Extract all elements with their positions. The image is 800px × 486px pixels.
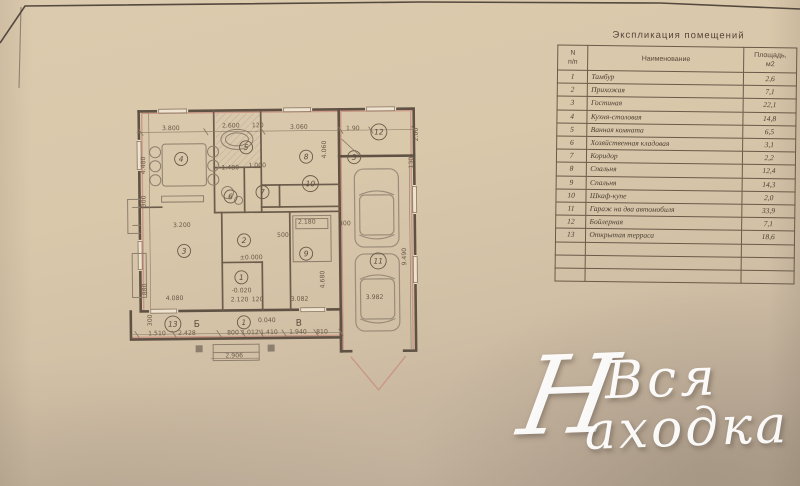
cell-area: 7,1 (742, 218, 795, 232)
dimension-label: 4.060 (321, 141, 328, 159)
dimension-label: 2.600 (222, 122, 240, 129)
bathroom-hatch (216, 113, 261, 166)
axis-label: Б (194, 320, 200, 330)
room-number: 9 (300, 247, 313, 260)
cell-area: 22,1 (743, 99, 796, 113)
room-number: 3 (178, 244, 191, 257)
cell-name: Коридор (587, 150, 743, 165)
cell-area: 33,9 (742, 204, 795, 218)
room-number: 11 (370, 253, 386, 269)
cell-num: 7 (556, 149, 587, 163)
svg-text:13: 13 (168, 320, 178, 329)
dimension-label: 1.510 (148, 330, 166, 337)
dimension-label: 120 (252, 122, 264, 129)
empty-row (555, 268, 794, 284)
svg-text:6: 6 (228, 192, 233, 201)
cell-area: 18,6 (742, 231, 795, 245)
svg-text:1: 1 (239, 273, 244, 282)
cell-area: 2,2 (743, 152, 796, 166)
cell-name: Спальня (587, 163, 743, 178)
col-header-num: N п/п (558, 45, 589, 70)
dimension-label: 9.490 (401, 248, 408, 266)
windows (137, 107, 418, 314)
cell-num: 9 (556, 176, 587, 190)
svg-text:11: 11 (373, 256, 383, 265)
dimension-label: 300 (147, 314, 154, 326)
cell-num: 11 (556, 202, 587, 216)
cell-area: 7,1 (744, 86, 797, 100)
svg-text:12: 12 (374, 127, 384, 136)
col-header-name: Наименование (588, 45, 744, 72)
dimension-label: 1.940 (289, 329, 307, 336)
svg-text:5: 5 (244, 143, 249, 152)
cell-name: Тамбур (588, 70, 744, 85)
dimension-label: 1.480 (221, 164, 239, 171)
cell-area: 12,4 (743, 165, 796, 179)
room-number: 6 (224, 190, 237, 203)
dimension-label: 3.060 (290, 124, 308, 131)
axis-label: В (296, 319, 302, 329)
room-number: 8 (300, 150, 313, 163)
dimension-label: 2.00 (413, 128, 420, 142)
svg-text:8: 8 (304, 152, 309, 161)
svg-text:10: 10 (306, 179, 316, 188)
dimension-label: 4.680 (319, 271, 326, 289)
col-header-area: Площадь, м2 (744, 47, 797, 73)
svg-text:1: 1 (241, 318, 246, 327)
dimension-label: 1.012 (241, 329, 259, 336)
cell-num: 5 (557, 123, 588, 137)
cell-name: Бойлерная (586, 216, 742, 231)
axis-labels: БВ (194, 319, 302, 330)
schedule-title: Экспликация помещений (557, 29, 799, 41)
schedule-header-row: N п/п Наименование Площадь, м2 (558, 45, 797, 73)
cell-name: Хозяйственная кладовая (587, 136, 743, 151)
cell-name: Ванная комната (587, 123, 743, 138)
cell-name: Гостиная (587, 97, 743, 112)
cell-num: 6 (557, 136, 588, 150)
dimension-label: 3.082 (291, 296, 309, 303)
cell-name: Кухня-столовая (587, 110, 743, 125)
dimension-label: 3.982 (366, 294, 384, 301)
dimension-label: 4.480 (140, 156, 147, 174)
cell-name: Шкаф-купе (586, 189, 742, 204)
svg-text:7: 7 (260, 188, 265, 197)
room-number: 1 (237, 316, 250, 329)
dimension-label: 400 (339, 220, 351, 227)
cell-area: 2,0 (742, 191, 795, 205)
room-number: 4 (175, 152, 188, 165)
cell-num: 1 (557, 70, 588, 84)
svg-text:4: 4 (179, 155, 184, 164)
dimension-label: 120 (252, 296, 264, 303)
room-schedule: Экспликация помещений N п/п Наименование… (554, 29, 799, 285)
dimension-label: 300 (141, 195, 148, 207)
room-number: 2 (237, 234, 250, 247)
dimension-label: 500 (277, 232, 289, 239)
dimension-label: 880 (141, 283, 148, 295)
cell-area: 3,1 (743, 138, 796, 152)
dimension-label: 800 (227, 329, 239, 336)
room-number: 7 (256, 186, 269, 199)
room-number: 12 (371, 124, 387, 140)
dimension-label: 3.800 (162, 125, 180, 132)
cell-num: 10 (556, 189, 587, 203)
dimension-label: 1.000 (248, 162, 266, 169)
cell-area: 2,6 (744, 72, 797, 86)
fireplace (128, 199, 140, 233)
cell-num: 2 (557, 83, 588, 97)
room-number: 1 (235, 271, 248, 284)
dimension-label: 2.428 (178, 330, 196, 337)
dimension-label: 130 (408, 157, 415, 169)
cell-num: 3 (557, 96, 588, 110)
dimension-label: 810 (316, 328, 328, 335)
cell-area: 6,5 (743, 125, 796, 139)
dimension-label: 1.90 (346, 125, 360, 132)
cell-name: Гараж на два автомобиля (586, 202, 742, 217)
dimension-label: 4.080 (166, 295, 184, 302)
svg-text:2: 2 (242, 236, 247, 245)
dimension-label: 1.410 (260, 329, 278, 336)
dimension-label: 0.040 (258, 317, 276, 324)
dimension-label: 2.120 (231, 296, 249, 303)
cell-num: 12 (556, 215, 587, 229)
garage-cars (354, 169, 400, 331)
door-swing (342, 139, 359, 155)
cell-num: 4 (557, 110, 588, 124)
dimension-label: -0.020 (232, 287, 252, 294)
dimension-label: 3.200 (173, 222, 191, 229)
cell-name: Открытая терраса (586, 229, 742, 244)
cell-name: Спальня (586, 176, 742, 191)
schedule-table: N п/п Наименование Площадь, м2 1Тамбур2,… (554, 45, 797, 285)
svg-text:3: 3 (182, 247, 187, 256)
dimension-label: ±0.000 (240, 254, 263, 261)
svg-text:9: 9 (304, 249, 309, 258)
room-number: 10 (302, 176, 318, 192)
cell-num: 13 (555, 228, 586, 242)
room-number: 13 (165, 316, 181, 332)
dimension-label: 2.906 (225, 352, 243, 359)
dimension-label: 2.180 (298, 219, 316, 226)
cell-area: 14,3 (742, 178, 795, 192)
svg-text:3: 3 (352, 153, 357, 162)
cell-area: 14,8 (743, 112, 796, 126)
cell-num: 8 (556, 162, 587, 176)
cell-name: Прихожая (588, 84, 744, 99)
